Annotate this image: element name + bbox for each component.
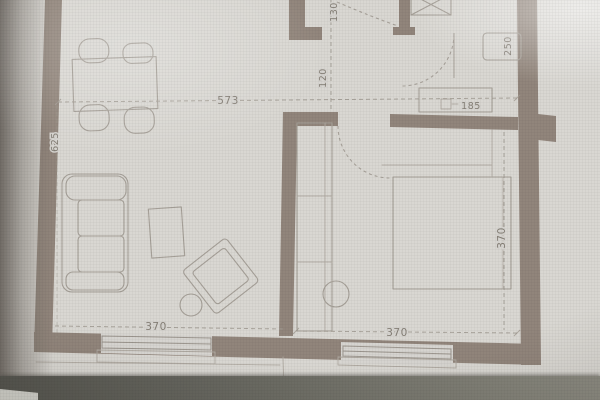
window-living bbox=[97, 333, 215, 364]
wall-bedroom-left-L bbox=[279, 112, 338, 336]
dim-label-living-window: 370 bbox=[145, 321, 167, 333]
dim-line-living-window bbox=[55, 326, 284, 329]
dining-set bbox=[71, 37, 158, 136]
sink-cross-icon bbox=[411, 0, 451, 15]
sofa-armrest-bottom bbox=[66, 272, 124, 290]
lounge-chair bbox=[182, 237, 259, 314]
sink-unit bbox=[411, 0, 451, 15]
photo-bottom-band bbox=[0, 376, 600, 400]
dining-chair bbox=[124, 107, 155, 134]
wall-bedroom-top bbox=[390, 114, 518, 130]
bedroom-stool bbox=[323, 281, 349, 307]
dining-table bbox=[72, 57, 158, 112]
door-arc-kitchen bbox=[402, 34, 454, 86]
dim-label-kitchen-unit: 185 bbox=[461, 101, 481, 112]
photo-left-shadow bbox=[0, 0, 56, 400]
coffee-table bbox=[148, 207, 184, 258]
bed bbox=[382, 130, 511, 289]
lounge-chair-seat bbox=[192, 247, 250, 305]
dining-chair bbox=[79, 104, 110, 131]
dining-chair bbox=[123, 43, 154, 64]
footstool bbox=[180, 294, 202, 316]
kitchen-unit bbox=[419, 88, 492, 112]
sofa-armrest-top bbox=[66, 176, 126, 200]
sofa-outline bbox=[62, 174, 128, 292]
wall-kitchen-top bbox=[393, 0, 415, 35]
sofa-cushion bbox=[78, 200, 124, 236]
bed-outline bbox=[393, 177, 511, 289]
wall-entry-L bbox=[289, 0, 322, 40]
dim-label-kitchen-counter: 250 bbox=[503, 36, 514, 56]
window-bedroom bbox=[338, 342, 456, 368]
dim-label-bedroom-width: 370 bbox=[386, 327, 408, 339]
kitchen-unit-symbol bbox=[441, 99, 451, 109]
wardrobe-outline bbox=[297, 123, 332, 331]
wall-stub-right bbox=[538, 114, 556, 142]
dim-label-bedroom-depth: 370 bbox=[496, 227, 508, 249]
sofa-cushion bbox=[78, 236, 124, 272]
floor-plan-drawing: 573 625 130 120 250 185 370 370 370 bbox=[0, 0, 600, 400]
bedroom-closet-lines bbox=[382, 130, 492, 176]
kitchen-counter bbox=[483, 33, 521, 60]
wardrobe bbox=[297, 123, 332, 331]
sofa bbox=[62, 174, 128, 292]
floor-plan-photo: 573 625 130 120 250 185 370 370 370 bbox=[0, 0, 600, 400]
dim-label-hall-mid: 120 bbox=[318, 68, 329, 88]
door-arc-bedroom bbox=[338, 126, 390, 178]
door-arc-entry bbox=[337, 2, 398, 26]
dim-label-hall-top: 130 bbox=[329, 2, 340, 22]
wardrobe-dividers bbox=[297, 196, 332, 262]
lounge-chair-outline bbox=[182, 237, 259, 314]
dim-label-living-width: 573 bbox=[217, 95, 239, 107]
